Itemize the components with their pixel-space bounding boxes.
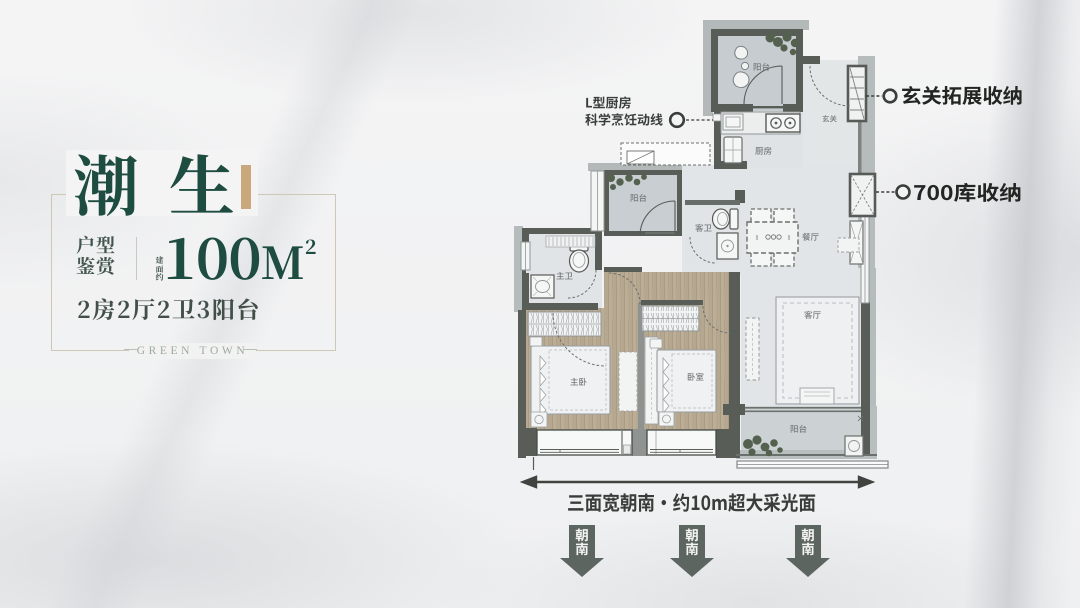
svg-text:700库收纳: 700库收纳	[913, 177, 1022, 206]
svg-text:科学烹饪动线: 科学烹饪动线	[585, 110, 663, 129]
svg-text:主卫: 主卫	[556, 270, 574, 282]
svg-text:南: 南	[685, 538, 699, 558]
svg-text:厨房: 厨房	[755, 145, 772, 157]
svg-text:玄关: 玄关	[822, 114, 837, 125]
svg-text:阳台: 阳台	[790, 423, 807, 435]
svg-text:阳台: 阳台	[753, 61, 770, 73]
svg-text:客厅: 客厅	[804, 309, 822, 321]
svg-text:主卧: 主卧	[570, 376, 588, 388]
svg-text:南: 南	[801, 538, 815, 558]
svg-text:三面宽朝南·约10m超大采光面: 三面宽朝南·约10m超大采光面	[567, 487, 816, 516]
svg-text:餐厅: 餐厅	[802, 231, 820, 243]
svg-text:客卫: 客卫	[695, 222, 713, 234]
svg-text:玄关拓展收纳: 玄关拓展收纳	[901, 80, 1023, 109]
svg-text:卧室: 卧室	[687, 371, 705, 383]
svg-text:阳台: 阳台	[630, 192, 647, 204]
svg-text:南: 南	[575, 538, 589, 558]
